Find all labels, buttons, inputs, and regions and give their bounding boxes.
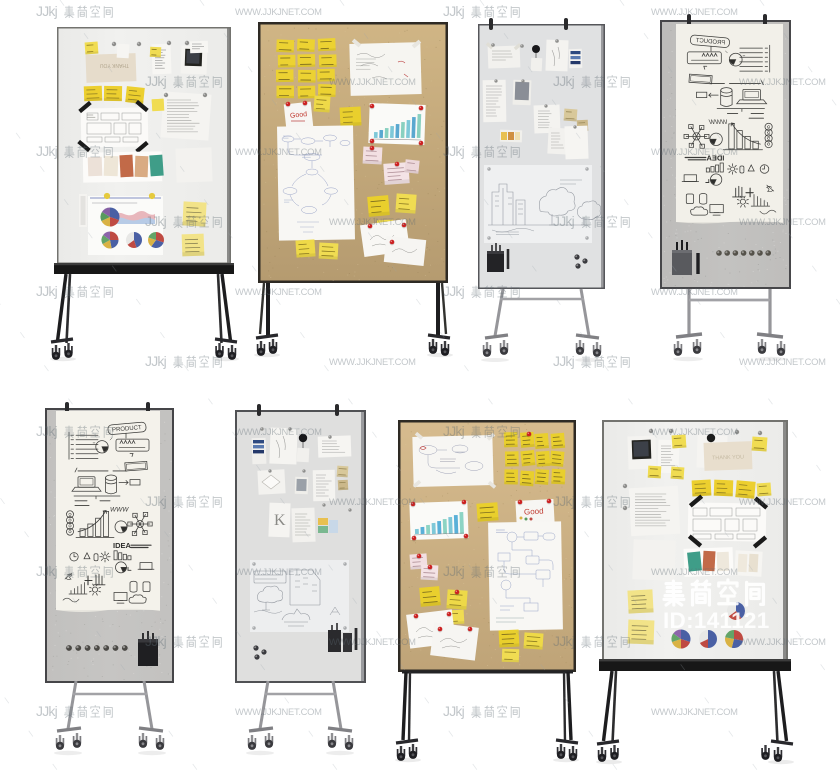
svg-text:K: K [274,512,286,529]
svg-text:Good: Good [524,507,544,517]
svg-text:WWW: WWW [708,119,727,126]
svg-text:ID:141121: ID:141121 [663,608,770,633]
svg-text:IDEA: IDEA [113,541,132,550]
svg-text:THANK YOU: THANK YOU [712,454,744,461]
svg-text:WWW: WWW [110,506,129,513]
svg-text:THANK YOU: THANK YOU [100,62,129,68]
